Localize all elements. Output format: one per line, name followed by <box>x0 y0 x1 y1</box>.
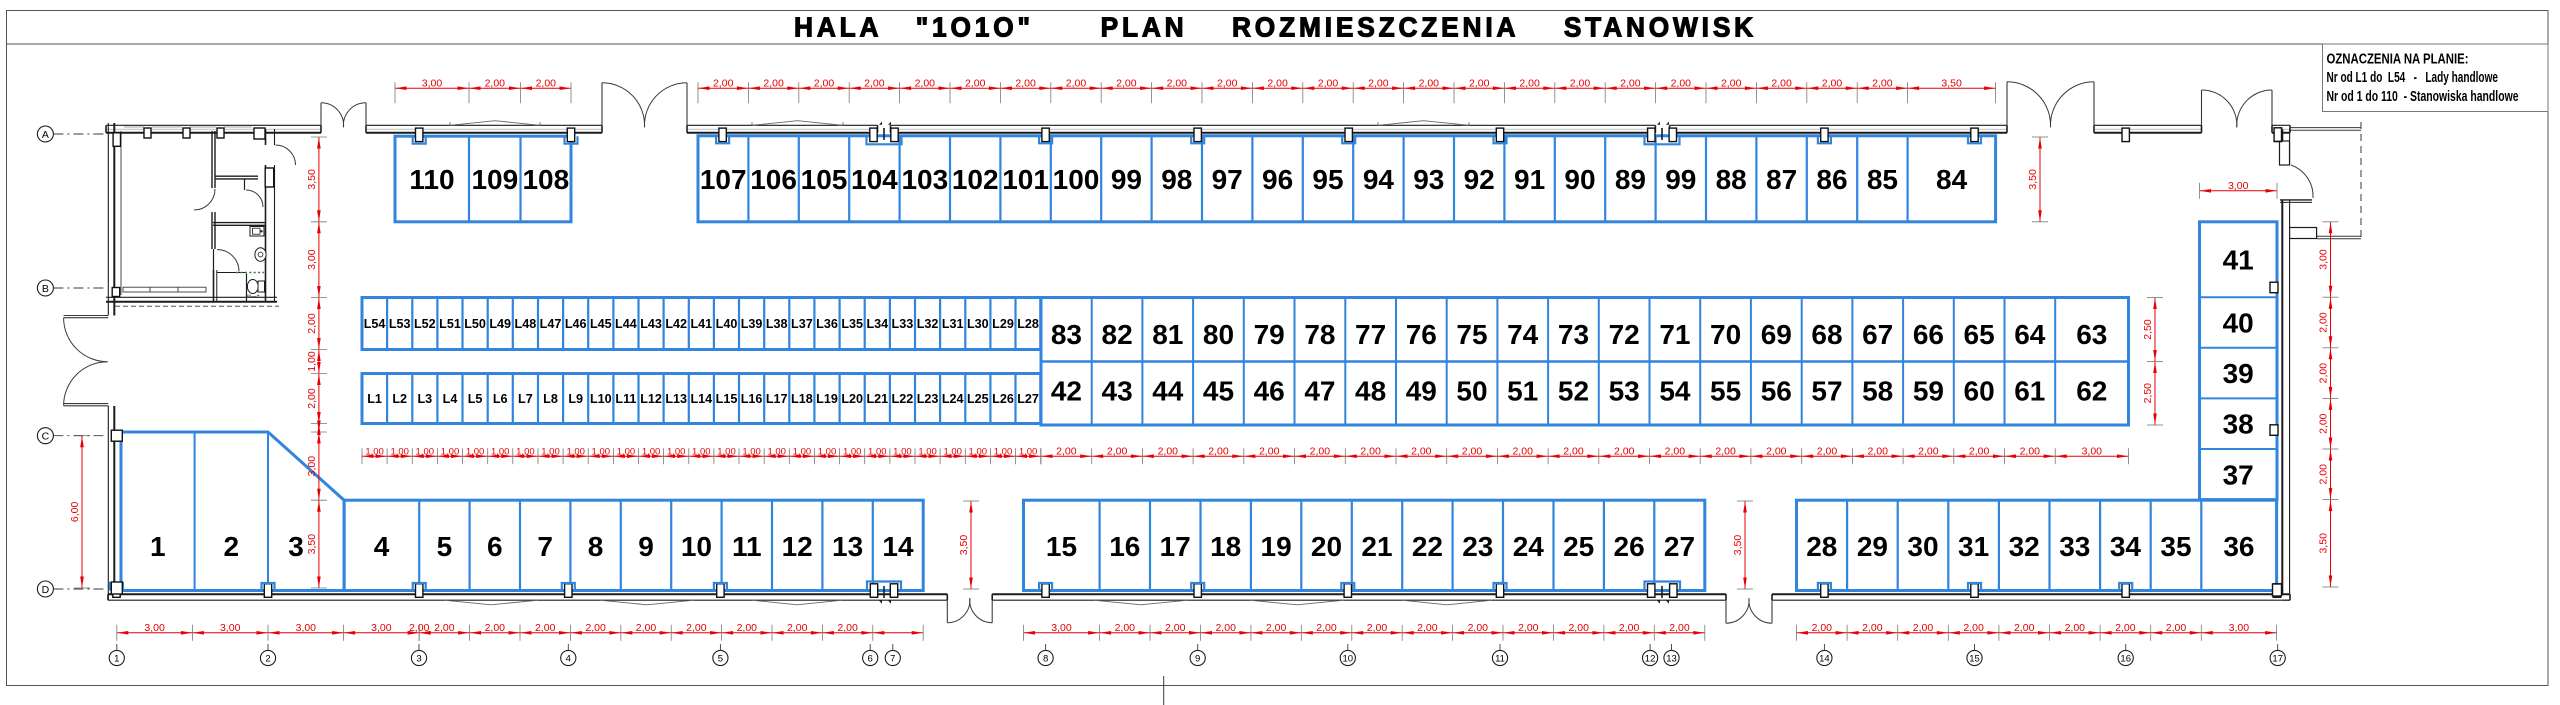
svg-text:2,00: 2,00 <box>1614 445 1635 457</box>
svg-text:75: 75 <box>1456 319 1487 350</box>
svg-text:2,00: 2,00 <box>1872 77 1893 89</box>
svg-text:L9: L9 <box>568 392 583 406</box>
svg-text:8: 8 <box>588 531 604 562</box>
svg-text:57: 57 <box>1811 376 1842 407</box>
svg-text:31: 31 <box>1958 531 1989 562</box>
svg-text:2,00: 2,00 <box>1715 445 1736 457</box>
svg-text:2,00: 2,00 <box>2318 312 2330 333</box>
svg-text:2,00: 2,00 <box>2166 622 2187 634</box>
svg-text:32: 32 <box>2009 531 2040 562</box>
svg-text:4: 4 <box>374 531 390 562</box>
svg-text:L40: L40 <box>716 317 738 331</box>
svg-text:2: 2 <box>224 531 240 562</box>
svg-text:16: 16 <box>2120 653 2131 664</box>
svg-text:2,00: 2,00 <box>814 77 835 89</box>
svg-text:1: 1 <box>150 531 166 562</box>
svg-text:Nr od L1 do L54 - Lady ha: Nr od L1 do L54 - Lady handlowe <box>2327 70 2499 86</box>
svg-text:5: 5 <box>718 653 723 664</box>
svg-text:1: 1 <box>114 653 119 664</box>
svg-text:2,00: 2,00 <box>585 622 606 634</box>
svg-text:13: 13 <box>1666 653 1677 664</box>
svg-text:17: 17 <box>2272 653 2283 664</box>
svg-text:2,00: 2,00 <box>1969 445 1990 457</box>
svg-text:68: 68 <box>1811 319 1842 350</box>
svg-text:3,50: 3,50 <box>306 169 318 190</box>
svg-text:L22: L22 <box>892 392 914 406</box>
svg-text:L7: L7 <box>518 392 533 406</box>
svg-text:2,00: 2,00 <box>1266 622 1287 634</box>
svg-text:L14: L14 <box>690 392 712 406</box>
svg-text:1,00: 1,00 <box>441 446 460 457</box>
svg-text:HALA "1O1O" PLAN ROZ: HALA "1O1O" PLAN ROZMIESZCZENIA STANOWIS… <box>794 12 1757 43</box>
svg-text:35: 35 <box>2160 531 2191 562</box>
svg-text:2,00: 2,00 <box>1721 77 1742 89</box>
svg-text:99: 99 <box>1111 164 1142 195</box>
svg-text:2,00: 2,00 <box>1563 445 1584 457</box>
svg-text:2,00: 2,00 <box>1519 77 1540 89</box>
svg-text:3,50: 3,50 <box>2027 169 2039 190</box>
svg-text:2,00: 2,00 <box>1367 622 1388 634</box>
svg-text:L44: L44 <box>615 317 637 331</box>
svg-text:2,00: 2,00 <box>1360 445 1381 457</box>
svg-text:22: 22 <box>1412 531 1443 562</box>
svg-text:L53: L53 <box>389 317 411 331</box>
svg-text:2,00: 2,00 <box>2318 363 2330 384</box>
svg-text:38: 38 <box>2223 409 2254 440</box>
svg-text:1,00: 1,00 <box>918 446 937 457</box>
svg-text:18: 18 <box>1210 531 1241 562</box>
svg-text:4: 4 <box>566 653 571 664</box>
svg-text:17: 17 <box>1160 531 1191 562</box>
svg-text:2,50: 2,50 <box>2142 319 2154 340</box>
svg-text:L50: L50 <box>464 317 486 331</box>
svg-text:103: 103 <box>901 164 948 195</box>
svg-text:2,00: 2,00 <box>535 622 556 634</box>
svg-text:2,00: 2,00 <box>1411 445 1432 457</box>
svg-text:105: 105 <box>801 164 848 195</box>
svg-text:2,00: 2,00 <box>1512 445 1533 457</box>
svg-text:2,00: 2,00 <box>1217 77 1238 89</box>
svg-text:94: 94 <box>1363 164 1395 195</box>
svg-text:C: C <box>42 431 50 443</box>
svg-text:2,00: 2,00 <box>2318 464 2330 485</box>
svg-text:2,00: 2,00 <box>915 77 936 89</box>
svg-text:1,00: 1,00 <box>516 446 535 457</box>
svg-text:63: 63 <box>2076 319 2107 350</box>
svg-text:3,50: 3,50 <box>958 535 970 556</box>
svg-text:3,00: 3,00 <box>2318 249 2330 270</box>
svg-text:2,00: 2,00 <box>1368 77 1389 89</box>
svg-text:2,00: 2,00 <box>837 622 858 634</box>
svg-text:12: 12 <box>782 531 813 562</box>
svg-text:24: 24 <box>1513 531 1545 562</box>
svg-text:1,00: 1,00 <box>541 446 560 457</box>
svg-text:L31: L31 <box>942 317 964 331</box>
svg-text:2,00: 2,00 <box>1165 622 1186 634</box>
svg-text:OZNACZENIA NA PLANIE:: OZNACZENIA NA PLANIE: <box>2327 52 2469 68</box>
svg-text:2,00: 2,00 <box>763 77 784 89</box>
svg-text:100: 100 <box>1053 164 1100 195</box>
svg-text:2,00: 2,00 <box>1115 622 1136 634</box>
svg-text:2,00: 2,00 <box>1671 77 1692 89</box>
svg-text:72: 72 <box>1609 319 1640 350</box>
svg-text:L48: L48 <box>515 317 537 331</box>
svg-text:87: 87 <box>1766 164 1797 195</box>
svg-text:51: 51 <box>1507 376 1538 407</box>
svg-text:56: 56 <box>1761 376 1792 407</box>
svg-text:2,00: 2,00 <box>1215 622 1236 634</box>
svg-text:L37: L37 <box>791 317 813 331</box>
svg-text:6,00: 6,00 <box>69 502 81 523</box>
svg-text:2,00: 2,00 <box>1056 445 1077 457</box>
svg-text:42: 42 <box>1051 376 1082 407</box>
svg-text:2,00: 2,00 <box>1419 77 1440 89</box>
svg-text:11: 11 <box>1495 653 1505 664</box>
svg-text:1,00: 1,00 <box>843 446 862 457</box>
svg-text:14: 14 <box>882 531 914 562</box>
svg-text:30: 30 <box>1907 531 1938 562</box>
svg-text:2,00: 2,00 <box>1812 622 1833 634</box>
svg-text:26: 26 <box>1614 531 1645 562</box>
svg-text:83: 83 <box>1051 319 1082 350</box>
svg-text:21: 21 <box>1361 531 1392 562</box>
svg-text:Nr od 1 do 110 - Stanowiska h: Nr od 1 do 110 - Stanowiska handlowe <box>2327 89 2519 105</box>
svg-text:7: 7 <box>537 531 553 562</box>
svg-text:3,50: 3,50 <box>306 534 318 555</box>
svg-text:44: 44 <box>1152 376 1184 407</box>
svg-text:102: 102 <box>952 164 999 195</box>
svg-text:59: 59 <box>1913 376 1944 407</box>
svg-text:3,00: 3,00 <box>371 622 392 634</box>
svg-text:3,00: 3,00 <box>144 622 165 634</box>
svg-text:L20: L20 <box>841 392 863 406</box>
svg-text:L19: L19 <box>816 392 838 406</box>
svg-text:79: 79 <box>1254 319 1285 350</box>
svg-text:20: 20 <box>1311 531 1342 562</box>
svg-text:15: 15 <box>1969 653 1980 664</box>
svg-text:L41: L41 <box>690 317 712 331</box>
svg-text:2,00: 2,00 <box>1963 622 1984 634</box>
svg-text:3,00: 3,00 <box>1051 622 1072 634</box>
svg-text:1,00: 1,00 <box>717 446 736 457</box>
svg-text:L47: L47 <box>540 317 562 331</box>
svg-text:L30: L30 <box>967 317 989 331</box>
svg-text:L51: L51 <box>439 317 461 331</box>
svg-text:1,00: 1,00 <box>767 446 786 457</box>
svg-text:106: 106 <box>750 164 797 195</box>
svg-text:9: 9 <box>638 531 654 562</box>
svg-text:58: 58 <box>1862 376 1893 407</box>
svg-text:2,00: 2,00 <box>1766 445 1787 457</box>
svg-text:66: 66 <box>1913 319 1944 350</box>
svg-text:23: 23 <box>1462 531 1493 562</box>
svg-text:90: 90 <box>1564 164 1595 195</box>
svg-text:3: 3 <box>416 653 421 664</box>
svg-text:2,00: 2,00 <box>1310 445 1331 457</box>
svg-text:2,00: 2,00 <box>1518 622 1539 634</box>
svg-text:65: 65 <box>1964 319 1995 350</box>
svg-text:50: 50 <box>1456 376 1487 407</box>
svg-text:L21: L21 <box>866 392 888 406</box>
svg-text:L34: L34 <box>866 317 888 331</box>
svg-text:2,00: 2,00 <box>1822 77 1843 89</box>
svg-text:13: 13 <box>832 531 863 562</box>
svg-text:2,00: 2,00 <box>1259 445 1280 457</box>
svg-text:11: 11 <box>732 531 762 562</box>
svg-text:L29: L29 <box>992 317 1014 331</box>
svg-text:10: 10 <box>1343 653 1354 664</box>
svg-text:2,00: 2,00 <box>965 77 986 89</box>
svg-text:1,00: 1,00 <box>566 446 585 457</box>
svg-text:10: 10 <box>681 531 712 562</box>
svg-text:7: 7 <box>890 653 895 664</box>
svg-text:55: 55 <box>1710 376 1741 407</box>
svg-text:40: 40 <box>2223 308 2254 339</box>
svg-text:2,00: 2,00 <box>1316 622 1337 634</box>
svg-text:16: 16 <box>1109 531 1140 562</box>
svg-text:3,50: 3,50 <box>2318 533 2330 554</box>
svg-text:L13: L13 <box>665 392 687 406</box>
svg-text:L12: L12 <box>640 392 662 406</box>
svg-text:L38: L38 <box>766 317 788 331</box>
svg-text:1,00: 1,00 <box>390 446 409 457</box>
svg-text:L6: L6 <box>493 392 508 406</box>
svg-text:L11: L11 <box>615 392 636 406</box>
svg-text:2,00: 2,00 <box>636 622 657 634</box>
svg-text:2,00: 2,00 <box>1620 77 1641 89</box>
svg-text:2,00: 2,00 <box>485 622 506 634</box>
svg-text:1,00: 1,00 <box>893 446 912 457</box>
svg-text:101: 101 <box>1002 164 1049 195</box>
svg-text:91: 91 <box>1514 164 1545 195</box>
svg-text:2,00: 2,00 <box>2065 622 2086 634</box>
svg-text:1,00: 1,00 <box>491 446 510 457</box>
svg-text:L35: L35 <box>841 317 863 331</box>
svg-text:L3: L3 <box>417 392 432 406</box>
svg-text:2,00: 2,00 <box>1913 622 1934 634</box>
svg-text:2,00: 2,00 <box>1771 77 1792 89</box>
svg-text:2,00: 2,00 <box>1669 622 1690 634</box>
svg-text:29: 29 <box>1857 531 1888 562</box>
svg-text:2,00: 2,00 <box>1417 622 1438 634</box>
svg-text:L49: L49 <box>489 317 511 331</box>
svg-text:3,00: 3,00 <box>2228 180 2249 192</box>
svg-text:62: 62 <box>2076 376 2107 407</box>
svg-text:12: 12 <box>1645 653 1656 664</box>
svg-text:2,00: 2,00 <box>1208 445 1229 457</box>
svg-text:36: 36 <box>2223 531 2254 562</box>
svg-text:108: 108 <box>522 164 569 195</box>
svg-text:1,00: 1,00 <box>692 446 711 457</box>
svg-text:L36: L36 <box>816 317 838 331</box>
svg-text:1,00: 1,00 <box>943 446 962 457</box>
svg-text:98: 98 <box>1161 164 1192 195</box>
svg-text:2,00: 2,00 <box>1817 445 1838 457</box>
svg-text:w—+: w—+ <box>246 294 260 300</box>
svg-text:1,00: 1,00 <box>818 446 837 457</box>
svg-text:L15: L15 <box>716 392 738 406</box>
svg-text:L54: L54 <box>364 317 386 331</box>
svg-text:2,00: 2,00 <box>686 622 707 634</box>
svg-text:L16: L16 <box>741 392 763 406</box>
svg-text:L46: L46 <box>565 317 587 331</box>
svg-text:L43: L43 <box>640 317 662 331</box>
svg-text:L17: L17 <box>766 392 788 406</box>
svg-text:2,00: 2,00 <box>1867 445 1888 457</box>
svg-text:80: 80 <box>1203 319 1234 350</box>
svg-text:L33: L33 <box>892 317 914 331</box>
svg-text:48: 48 <box>1355 376 1386 407</box>
svg-text:1,00: 1,00 <box>793 446 812 457</box>
svg-text:2,00: 2,00 <box>1116 77 1137 89</box>
svg-text:1,00: 1,00 <box>306 351 318 372</box>
svg-text:1,00: 1,00 <box>868 446 887 457</box>
svg-text:5: 5 <box>437 531 453 562</box>
svg-text:52: 52 <box>1558 376 1589 407</box>
svg-text:1,00: 1,00 <box>617 446 636 457</box>
svg-text:2,00: 2,00 <box>1158 445 1179 457</box>
svg-text:104: 104 <box>851 164 898 195</box>
svg-text:49: 49 <box>1406 376 1437 407</box>
svg-text:86: 86 <box>1816 164 1847 195</box>
svg-text:97: 97 <box>1212 164 1243 195</box>
svg-text:3,00: 3,00 <box>422 77 443 89</box>
svg-text:2,00: 2,00 <box>1568 622 1589 634</box>
svg-text:25: 25 <box>1563 531 1594 562</box>
svg-text:2,50: 2,50 <box>2142 383 2154 404</box>
svg-text:95: 95 <box>1312 164 1343 195</box>
svg-text:L2: L2 <box>392 392 407 406</box>
svg-text:2,00: 2,00 <box>1918 445 1939 457</box>
svg-text:64: 64 <box>2014 319 2046 350</box>
svg-text:1,00: 1,00 <box>1019 446 1038 457</box>
svg-text:110: 110 <box>409 164 454 195</box>
svg-text:71: 71 <box>1659 319 1690 350</box>
svg-text:60: 60 <box>1964 376 1995 407</box>
svg-text:2,00: 2,00 <box>1267 77 1288 89</box>
svg-text:2,00: 2,00 <box>409 622 430 634</box>
svg-text:D: D <box>42 584 50 596</box>
svg-text:L10: L10 <box>590 392 612 406</box>
svg-text:2,00: 2,00 <box>1066 77 1087 89</box>
svg-text:33: 33 <box>2059 531 2090 562</box>
svg-text:92: 92 <box>1464 164 1495 195</box>
svg-text:27: 27 <box>1664 531 1695 562</box>
svg-text:70: 70 <box>1710 319 1741 350</box>
svg-text:2,00: 2,00 <box>713 77 734 89</box>
svg-text:1,00: 1,00 <box>416 446 435 457</box>
svg-text:73: 73 <box>1558 319 1589 350</box>
svg-text:1,00: 1,00 <box>742 446 761 457</box>
svg-text:2,00: 2,00 <box>864 77 885 89</box>
svg-text:3,00: 3,00 <box>2082 445 2103 457</box>
svg-text:2,00: 2,00 <box>2020 445 2041 457</box>
svg-text:L18: L18 <box>791 392 813 406</box>
svg-text:2,00: 2,00 <box>1619 622 1640 634</box>
svg-text:1,00: 1,00 <box>642 446 661 457</box>
svg-text:1,00: 1,00 <box>969 446 988 457</box>
svg-text:61: 61 <box>2014 376 2045 407</box>
svg-text:2,00: 2,00 <box>1665 445 1686 457</box>
svg-text:6: 6 <box>487 531 503 562</box>
svg-text:93: 93 <box>1413 164 1444 195</box>
svg-text:L1: L1 <box>367 392 382 406</box>
svg-text:2,00: 2,00 <box>434 622 455 634</box>
svg-text:2,00: 2,00 <box>536 77 557 89</box>
svg-text:81: 81 <box>1152 319 1183 350</box>
svg-text:19: 19 <box>1261 531 1292 562</box>
svg-text:88: 88 <box>1716 164 1747 195</box>
svg-text:77: 77 <box>1355 319 1386 350</box>
svg-text:3,00: 3,00 <box>306 456 318 477</box>
svg-text:1,00: 1,00 <box>592 446 611 457</box>
svg-text:54: 54 <box>1659 376 1691 407</box>
svg-text:2,00: 2,00 <box>2115 622 2136 634</box>
svg-text:2,00: 2,00 <box>2318 413 2330 434</box>
svg-text:78: 78 <box>1304 319 1335 350</box>
svg-text:34: 34 <box>2110 531 2142 562</box>
svg-text:3,00: 3,00 <box>306 249 318 270</box>
svg-text:2,00: 2,00 <box>1468 622 1489 634</box>
svg-text:76: 76 <box>1406 319 1437 350</box>
svg-text:82: 82 <box>1102 319 1133 350</box>
svg-text:2,00: 2,00 <box>737 622 758 634</box>
svg-text:43: 43 <box>1102 376 1133 407</box>
svg-text:1,00: 1,00 <box>466 446 485 457</box>
svg-text:2,00: 2,00 <box>1318 77 1339 89</box>
svg-text:L27: L27 <box>1017 392 1039 406</box>
svg-text:96: 96 <box>1262 164 1293 195</box>
svg-text:2,00: 2,00 <box>306 388 318 409</box>
svg-text:L8: L8 <box>543 392 558 406</box>
svg-text:67: 67 <box>1862 319 1893 350</box>
svg-text:47: 47 <box>1304 376 1335 407</box>
svg-text:53: 53 <box>1609 376 1640 407</box>
svg-text:2: 2 <box>265 653 270 664</box>
svg-text:14: 14 <box>1819 653 1830 664</box>
svg-text:69: 69 <box>1761 319 1792 350</box>
svg-text:8: 8 <box>1043 653 1048 664</box>
svg-text:109: 109 <box>471 164 518 195</box>
svg-text:2,00: 2,00 <box>1167 77 1188 89</box>
svg-text:2,00: 2,00 <box>485 77 506 89</box>
svg-text:2,00: 2,00 <box>1015 77 1036 89</box>
svg-text:2,00: 2,00 <box>1570 77 1591 89</box>
svg-text:1,00: 1,00 <box>667 446 686 457</box>
svg-text:99: 99 <box>1665 164 1696 195</box>
svg-text:39: 39 <box>2223 358 2254 389</box>
svg-text:L5: L5 <box>468 392 483 406</box>
svg-text:41: 41 <box>2223 245 2254 276</box>
svg-text:45: 45 <box>1203 376 1234 407</box>
svg-text:L23: L23 <box>917 392 939 406</box>
svg-text:B: B <box>42 283 49 295</box>
svg-text:6: 6 <box>868 653 873 664</box>
svg-text:107: 107 <box>700 164 747 195</box>
svg-text:2,00: 2,00 <box>1462 445 1483 457</box>
svg-text:1,00: 1,00 <box>365 446 384 457</box>
svg-text:2,00: 2,00 <box>306 313 318 334</box>
svg-text:46: 46 <box>1254 376 1285 407</box>
svg-text:2,00: 2,00 <box>1469 77 1490 89</box>
svg-text:L25: L25 <box>967 392 989 406</box>
svg-text:2,00: 2,00 <box>1107 445 1128 457</box>
svg-text:3,50: 3,50 <box>1732 535 1744 556</box>
svg-text:15: 15 <box>1046 531 1077 562</box>
svg-text:89: 89 <box>1615 164 1646 195</box>
svg-text:A: A <box>42 129 49 141</box>
svg-text:L52: L52 <box>414 317 436 331</box>
